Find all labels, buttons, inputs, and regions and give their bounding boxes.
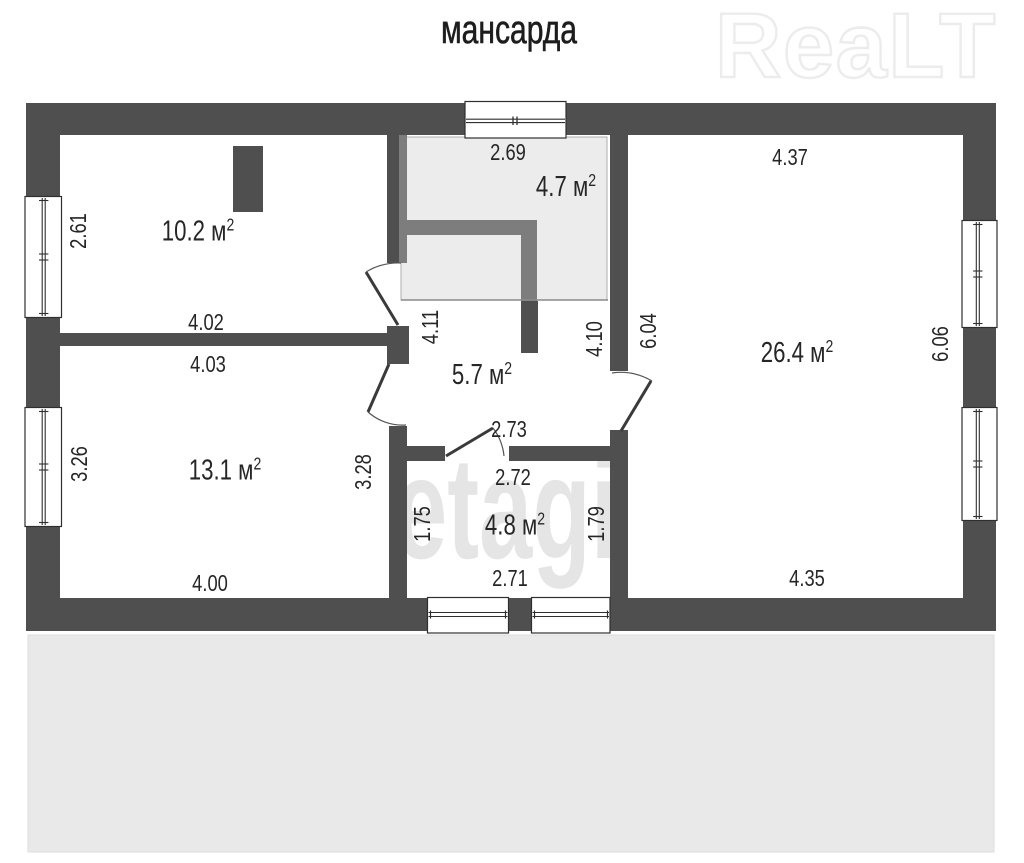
svg-text:4.7 м2: 4.7 м2 xyxy=(536,170,596,202)
svg-text:2.69: 2.69 xyxy=(490,140,526,166)
svg-text:4.37: 4.37 xyxy=(772,145,808,171)
svg-text:ReaLT: ReaLT xyxy=(715,0,997,97)
svg-text:10.2 м2: 10.2 м2 xyxy=(162,215,235,247)
svg-text:26.4 м2: 26.4 м2 xyxy=(761,336,834,368)
svg-text:2.72: 2.72 xyxy=(495,465,531,491)
svg-text:мансарда: мансарда xyxy=(441,8,578,52)
svg-text:1.75: 1.75 xyxy=(410,506,436,542)
svg-text:6.06: 6.06 xyxy=(928,326,954,362)
svg-text:2.71: 2.71 xyxy=(492,566,528,592)
svg-text:4.02: 4.02 xyxy=(188,310,224,336)
svg-text:4.8 м2: 4.8 м2 xyxy=(485,509,545,541)
svg-text:5.7 м2: 5.7 м2 xyxy=(452,358,512,390)
svg-text:3.26: 3.26 xyxy=(67,446,93,482)
svg-text:4.10: 4.10 xyxy=(582,321,608,357)
svg-text:2.61: 2.61 xyxy=(66,213,92,249)
svg-text:2.73: 2.73 xyxy=(491,417,527,443)
svg-text:4.00: 4.00 xyxy=(192,571,228,597)
svg-text:6.04: 6.04 xyxy=(636,313,662,349)
svg-text:13.1 м2: 13.1 м2 xyxy=(189,454,262,486)
svg-text:4.11: 4.11 xyxy=(418,310,444,344)
svg-text:4.35: 4.35 xyxy=(789,566,825,592)
svg-text:1.79: 1.79 xyxy=(584,506,610,542)
svg-text:3.28: 3.28 xyxy=(351,454,377,490)
svg-text:4.03: 4.03 xyxy=(190,352,226,378)
